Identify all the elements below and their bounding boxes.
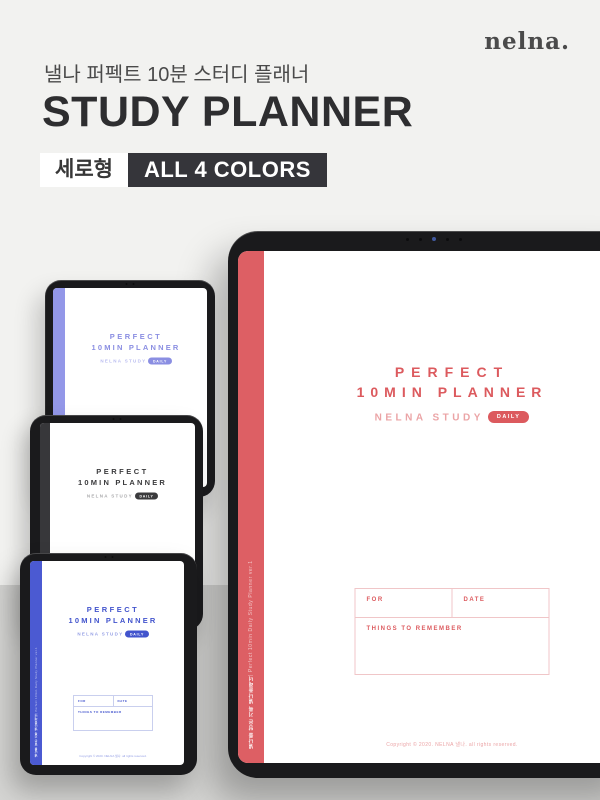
spine-label: 낼나를 담은 기록 낼나플래너 | Perfect 10min Daily St… <box>238 251 264 763</box>
planner-cover-red: 낼나를 담은 기록 낼나플래너 | Perfect 10min Daily St… <box>238 251 600 763</box>
cover-title-line1: PERFECT <box>50 467 195 476</box>
cover-title-line1: PERFECT <box>65 332 207 341</box>
cover-brand-line: NELNA STUDYDAILY <box>42 631 184 638</box>
tablet-mockup-blue: 낼나를 담은 기록 낼나플래너 | Perfect 10min Daily St… <box>20 553 197 775</box>
cover-brand-line: NELNA STUDYDAILY <box>65 358 207 365</box>
spine-label: 낼나를 담은 기록 낼나플래너 | Perfect 10min Daily St… <box>30 561 42 765</box>
daily-badge: DAILY <box>135 493 158 500</box>
planner-cover-blue: 낼나를 담은 기록 낼나플래너 | Perfect 10min Daily St… <box>30 561 184 765</box>
copyright-text: Copyright © 2020. NELNA 낼나. all rights r… <box>264 741 600 748</box>
cover-form: FOR DATE THINGS TO REMEMBER <box>73 695 153 731</box>
date-field: DATE <box>452 589 549 617</box>
cover-brand-line: NELNA STUDYDAILY <box>264 412 600 424</box>
cover-title-line2: 10MIN PLANNER <box>50 478 195 487</box>
brand-name: NELNA STUDY <box>375 413 484 424</box>
things-to-remember-field: THINGS TO REMEMBER <box>356 618 549 674</box>
badge-row: 세로형 ALL 4 COLORS <box>40 153 327 187</box>
product-title: STUDY PLANNER <box>42 88 413 137</box>
for-field: FOR <box>74 696 113 706</box>
colors-badge: ALL 4 COLORS <box>128 153 327 187</box>
things-to-remember-field: THINGS TO REMEMBER <box>74 707 152 730</box>
cover-title-line2: 10MIN PLANNER <box>65 343 207 352</box>
daily-badge: DAILY <box>488 411 530 423</box>
brand-name: NELNA STUDY <box>77 632 123 637</box>
cover-brand-line: NELNA STUDYDAILY <box>50 493 195 500</box>
cover-spine: 낼나를 담은 기록 낼나플래너 | Perfect 10min Daily St… <box>30 561 42 765</box>
camera-icon <box>112 418 121 420</box>
camera-icon <box>126 283 135 285</box>
daily-badge: DAILY <box>148 358 171 365</box>
cover-title-line1: PERFECT <box>42 605 184 614</box>
cover-spine: 낼나를 담은 기록 낼나플래너 | Perfect 10min Daily St… <box>238 251 264 763</box>
brand-name: NELNA STUDY <box>100 359 146 364</box>
product-subtitle-korean: 낼나 퍼펙트 10분 스터디 플래너 <box>44 58 309 87</box>
brand-logo: nelna. <box>484 28 570 55</box>
orientation-badge: 세로형 <box>40 153 128 187</box>
copyright-text: Copyright © 2020. NELNA 낼나. all rights r… <box>42 754 184 758</box>
date-field: DATE <box>113 696 153 706</box>
cover-form: FOR DATE THINGS TO REMEMBER <box>355 588 550 675</box>
brand-name: NELNA STUDY <box>87 494 133 499</box>
camera-icon <box>104 556 113 558</box>
promo-image: nelna. 낼나 퍼펙트 10분 스터디 플래너 STUDY PLANNER … <box>0 0 600 800</box>
cover-title-line2: 10MIN PLANNER <box>42 616 184 625</box>
cover-title-line1: PERFECT <box>264 365 600 379</box>
cover-title-line2: 10MIN PLANNER <box>264 385 600 399</box>
for-field: FOR <box>356 589 452 617</box>
daily-badge: DAILY <box>125 631 148 638</box>
tablet-mockup-large-red: 낼나를 담은 기록 낼나플래너 | Perfect 10min Daily St… <box>228 231 600 778</box>
camera-icon <box>406 237 462 241</box>
